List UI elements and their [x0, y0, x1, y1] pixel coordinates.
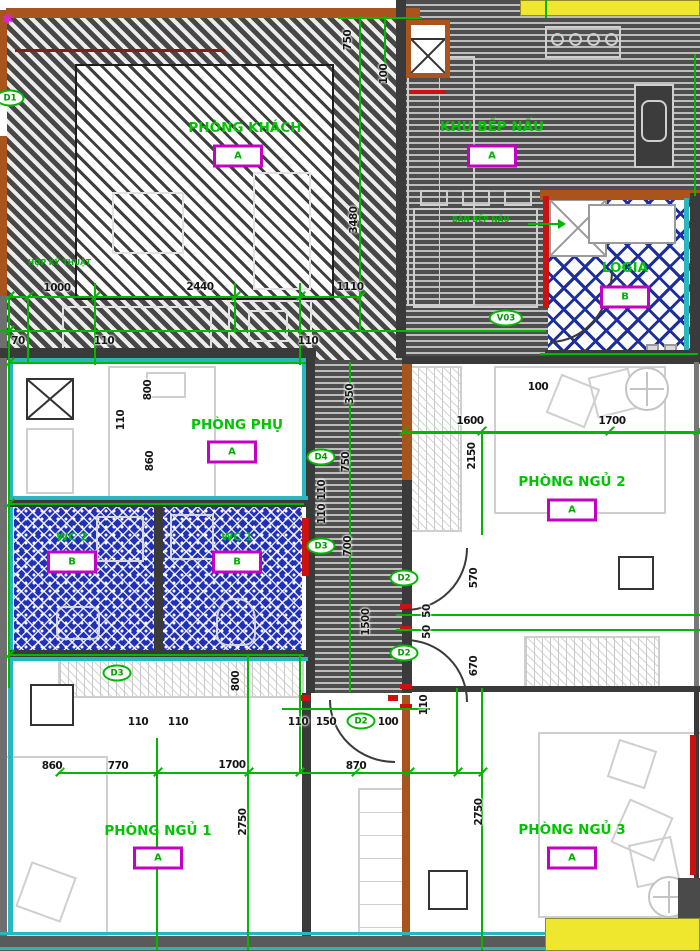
door-tag: D2: [390, 570, 419, 587]
wc1-toilet-outline: [216, 598, 256, 646]
room-type-badge: B: [212, 551, 262, 574]
green-dimension-line: [694, 54, 696, 196]
wall-corridor-right-upper: [402, 358, 412, 480]
dimension-label: 2750: [473, 798, 485, 825]
dimension-label: 860: [42, 760, 62, 772]
coffee-table-outline: [112, 192, 184, 254]
dimension-label: 100: [528, 381, 548, 393]
room-label: PHÒNG PHỤ: [191, 417, 283, 433]
wall-logia-right-face: [684, 198, 689, 353]
aux-side-table-outline: [26, 428, 74, 494]
room-type-badge: A: [213, 145, 263, 168]
stove-burner-icon: [569, 33, 582, 46]
shaft-door-mark: [410, 90, 446, 94]
dimension-label: 2440: [186, 281, 213, 293]
dimension-label: 110: [288, 716, 308, 728]
dimension-label: 670: [468, 656, 480, 676]
green-dimension-line: [545, 0, 547, 18]
wall-aux-top: [0, 348, 316, 358]
room-label: PHÒNG NGỦ 1: [104, 823, 211, 839]
room-label: LOGIA: [602, 260, 648, 276]
door-tag: D3: [103, 665, 132, 682]
bed2-nightstand-outline: [618, 556, 654, 590]
green-dimension-line: [8, 362, 306, 364]
annotation-text: BÀN BẾP NẤU: [452, 215, 510, 224]
green-dimension-line: [8, 296, 360, 298]
wall-wc-divider: [154, 506, 163, 654]
door-tag: D2: [390, 645, 419, 662]
dimension-label: 150: [316, 716, 336, 728]
door-jamb: [300, 695, 310, 701]
bed3-nightstand-outline: [428, 870, 468, 910]
green-dimension-line: [349, 362, 351, 692]
room-label: WC 2: [56, 531, 88, 544]
door-tag: D3: [307, 538, 336, 555]
dimension-label: 110: [128, 716, 148, 728]
dimension-label: 50: [421, 625, 433, 639]
wall-corner-block: [678, 878, 700, 922]
wall-kitchen-bed2-divider: [402, 356, 700, 364]
dimension-label: 750: [340, 452, 352, 472]
wc1-basin-outline: [170, 514, 214, 560]
door-frame-logia: [543, 196, 549, 308]
room-label: PHÒNG KHÁCH: [188, 120, 301, 136]
green-dimension-line: [299, 654, 301, 774]
dining-chair-outline: [420, 190, 448, 206]
dimension-label: 860: [144, 451, 156, 471]
dimension-label: 110: [298, 335, 318, 347]
dimension-label: 1600: [456, 415, 483, 427]
green-dimension-line: [247, 656, 249, 950]
fan-icon: [625, 367, 669, 411]
hall-wardrobe-outline: [358, 788, 404, 938]
green-dimension-line: [8, 503, 304, 505]
sofa-outline: [253, 172, 311, 290]
door-tag: D2: [347, 713, 376, 730]
room-type-badge: B: [47, 551, 97, 574]
yellow-corner-block: [545, 918, 700, 951]
room-type-badge: A: [467, 145, 517, 168]
dimension-label: 750: [342, 30, 354, 50]
wall-bed2-right: [694, 362, 699, 692]
dimension-label: 1000: [43, 282, 70, 294]
green-dimension-line: [8, 296, 10, 688]
dimension-label: 570: [468, 568, 480, 588]
wall-bed1-right: [302, 693, 311, 950]
wall-logia-right: [690, 193, 700, 360]
green-dimension-line: [58, 772, 482, 774]
green-dimension-line: [338, 17, 422, 19]
stove-burner-icon: [551, 33, 564, 46]
annotation-arrowhead-icon: [558, 219, 566, 229]
wall-left-mid: [0, 136, 7, 302]
dimension-label: 100: [378, 716, 398, 728]
wall-corridor-left-face: [302, 362, 306, 502]
dimension-label: 1700: [218, 759, 245, 771]
room-type-badge: A: [547, 847, 597, 870]
yellow-corner-block: [520, 0, 700, 16]
room-type-badge: B: [600, 286, 650, 309]
dimension-label: 110: [94, 335, 114, 347]
ceiling-beam-line: [15, 49, 225, 52]
dimension-label: 700: [342, 536, 354, 556]
bottom-edge-line: [0, 932, 545, 935]
dimension-label: 870: [346, 760, 366, 772]
room-type-badge: A: [547, 499, 597, 522]
green-dimension-line: [0, 330, 546, 332]
room-label: WC 1: [221, 531, 253, 544]
dimension-label: 100: [378, 64, 390, 84]
dining-chair-outline: [504, 190, 532, 206]
dimension-label: 70: [11, 335, 25, 347]
stove-burner-icon: [587, 33, 600, 46]
room-label: PHÒNG NGỦ 3: [518, 822, 625, 838]
dimension-label: 110: [115, 410, 127, 430]
dimension-label: 50: [421, 604, 433, 618]
green-dimension-line: [234, 283, 236, 333]
wall-hall-right: [402, 695, 410, 947]
technical-shaft-box: [406, 20, 450, 78]
green-dimension-line: [402, 431, 700, 434]
room-label: PHÒNG NGỦ 2: [518, 474, 625, 490]
door-tag: D4: [307, 449, 336, 466]
green-dimension-line: [456, 688, 458, 774]
corridor-floor-hatch: [314, 360, 403, 693]
stove-burner-icon: [605, 33, 618, 46]
room-type-badge: A: [133, 847, 183, 870]
wc2-shower-tray: [56, 606, 100, 640]
sink-basin-icon: [641, 100, 667, 142]
wc2-basin-outline: [96, 516, 144, 562]
wall-left-lower: [0, 296, 7, 948]
dimension-label: 800: [230, 671, 242, 691]
wall-wc-bottom-face: [8, 657, 308, 661]
green-dimension-line: [8, 654, 304, 656]
wall-living-kitchen-divider: [396, 0, 406, 358]
green-dimension-line: [27, 296, 29, 364]
dimension-label: 350: [344, 384, 356, 404]
dimension-label: 110: [168, 716, 188, 728]
annotation-text: HỘP KỸ THUẬT: [28, 258, 91, 267]
logia-shelf-outline: [588, 204, 676, 244]
dimension-label: 770: [108, 760, 128, 772]
dimension-label: 110: [418, 695, 430, 715]
bed3-wardrobe-outline: [524, 636, 660, 690]
green-dimension-line: [396, 629, 700, 631]
green-dimension-line: [282, 708, 430, 710]
cabinet-inner-outline: [248, 310, 288, 342]
bed1-table-outline: [30, 684, 74, 726]
dimension-label: 1700: [598, 415, 625, 427]
dimension-label: 110: [316, 504, 328, 524]
dimension-label: 1110: [336, 281, 363, 293]
wall-red-bed3-right: [690, 735, 696, 875]
room-type-badge: A: [207, 441, 257, 464]
dimension-label: 110: [316, 480, 328, 500]
dimension-label: 2150: [466, 442, 478, 469]
room-label: KHU BẾP NẤU: [440, 119, 544, 135]
bottom-edge-line: [0, 947, 545, 950]
floor-plan-canvas: ✱ 10002440111070110110750100348080011086…: [0, 0, 700, 951]
bed2-wardrobe-outline: [408, 366, 462, 532]
green-dimension-line: [481, 431, 483, 535]
reference-star-icon: ✱: [2, 12, 14, 28]
wall-logia-top: [540, 190, 700, 200]
dimension-label: 2750: [237, 808, 249, 835]
green-dimension-line: [540, 353, 698, 355]
dimension-label: 3480: [348, 206, 360, 233]
dining-chair-outline: [462, 190, 490, 206]
annotation-arrow: [528, 223, 558, 225]
green-dimension-line: [396, 614, 700, 616]
dimension-label: 800: [142, 380, 154, 400]
dimension-label: 1500: [360, 608, 372, 635]
storage-x-box: [26, 378, 74, 420]
